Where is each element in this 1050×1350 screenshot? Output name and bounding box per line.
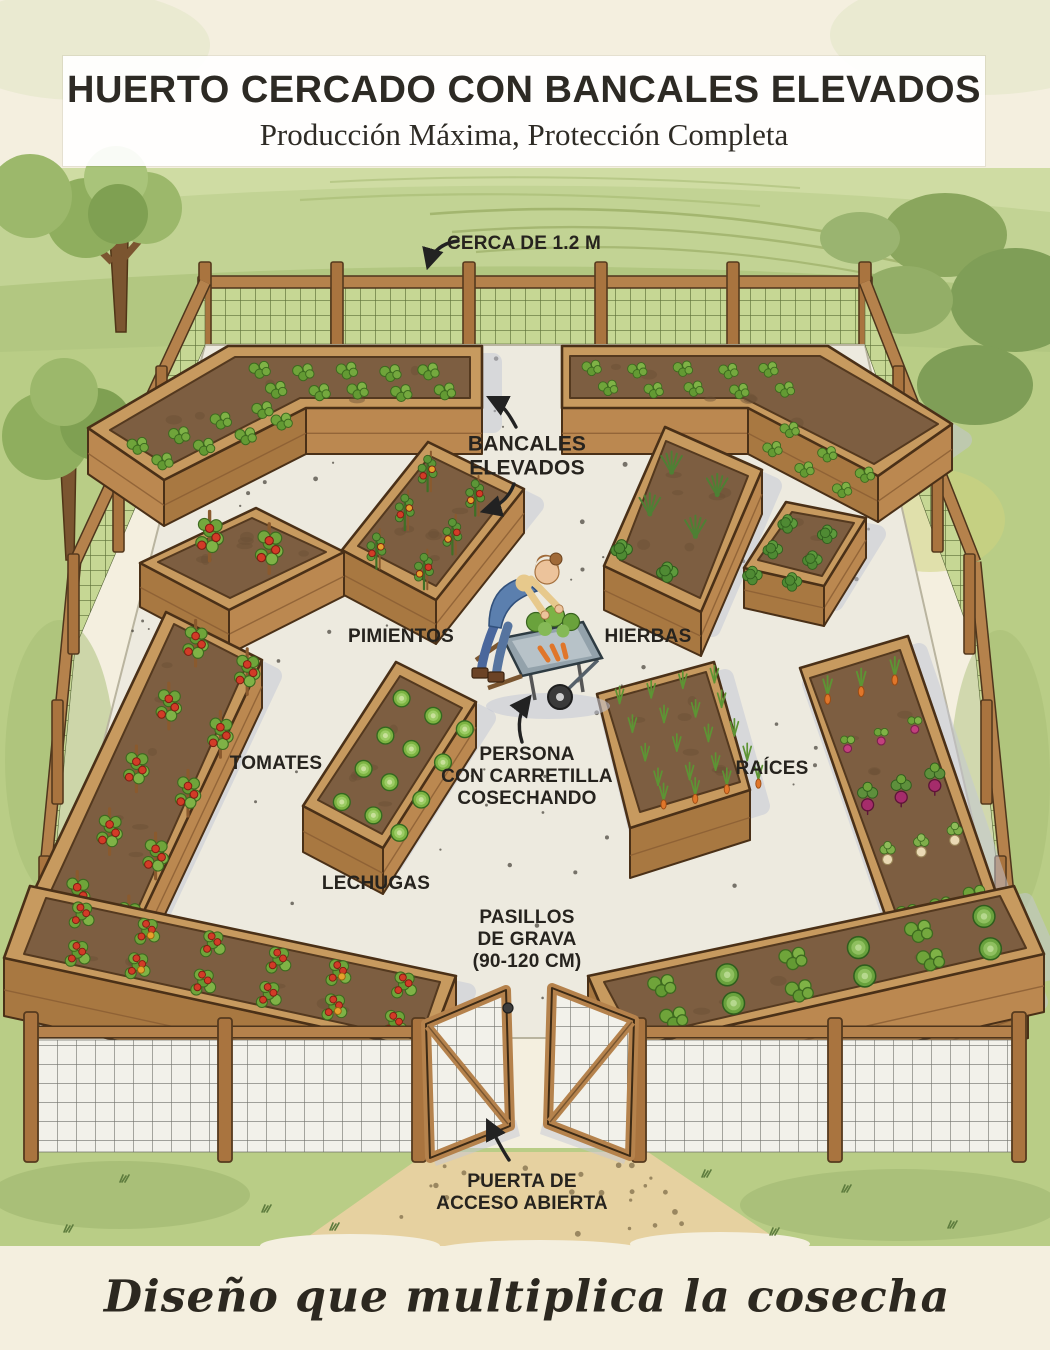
plant-lettuce — [403, 741, 420, 758]
plant-lettuce — [377, 727, 394, 744]
plant-cabbage — [979, 938, 1001, 960]
plant-cabbage — [854, 965, 876, 987]
label-roots: RAÍCES — [736, 758, 809, 780]
illustration-canvas: HUERTO CERCADO CON BANCALES ELEVADOS Pro… — [0, 0, 1050, 1350]
page-title: HUERTO CERCADO CON BANCALES ELEVADOS — [67, 69, 981, 112]
plant-cabbage — [716, 964, 738, 986]
plant-lettuce — [413, 791, 430, 808]
plant-lettuce — [391, 824, 408, 841]
label-gate: PUERTA DE ACCESO ABIERTA — [436, 1171, 608, 1215]
label-peppers: PIMIENTOS — [348, 626, 454, 648]
back-fence — [198, 262, 872, 350]
label-fence: CERCA DE 1.2 M — [447, 233, 601, 255]
label-raised-beds: BANCALES ELEVADOS — [468, 433, 586, 482]
plant-lettuce — [333, 794, 350, 811]
plant-lettuce — [425, 707, 442, 724]
page-subtitle: Producción Máxima, Protección Completa — [260, 117, 789, 153]
label-lettuce: LECHUGAS — [322, 873, 430, 895]
garden-illustration — [0, 0, 1050, 1350]
label-person: PERSONA CON CARRETILLA COSECHANDO — [441, 744, 613, 810]
title-box: HUERTO CERCADO CON BANCALES ELEVADOS Pro… — [63, 56, 985, 166]
label-herbs: HIERBAS — [605, 626, 692, 648]
plant-lettuce — [456, 721, 473, 738]
plant-lettuce — [365, 807, 382, 824]
plant-lettuce — [355, 760, 372, 777]
gate-door-right — [548, 988, 634, 1156]
tagline: Diseño que multiplica la cosecha — [104, 1272, 950, 1323]
plant-lettuce — [381, 774, 398, 791]
plant-lettuce — [393, 690, 410, 707]
plant-cabbage — [847, 937, 869, 959]
plant-cabbage — [723, 992, 745, 1014]
plant-cabbage — [973, 905, 995, 927]
gate-door-left — [426, 990, 513, 1158]
label-paths: PASILLOS DE GRAVA (90-120 CM) — [473, 907, 582, 973]
label-tomatoes: TOMATES — [230, 753, 323, 775]
